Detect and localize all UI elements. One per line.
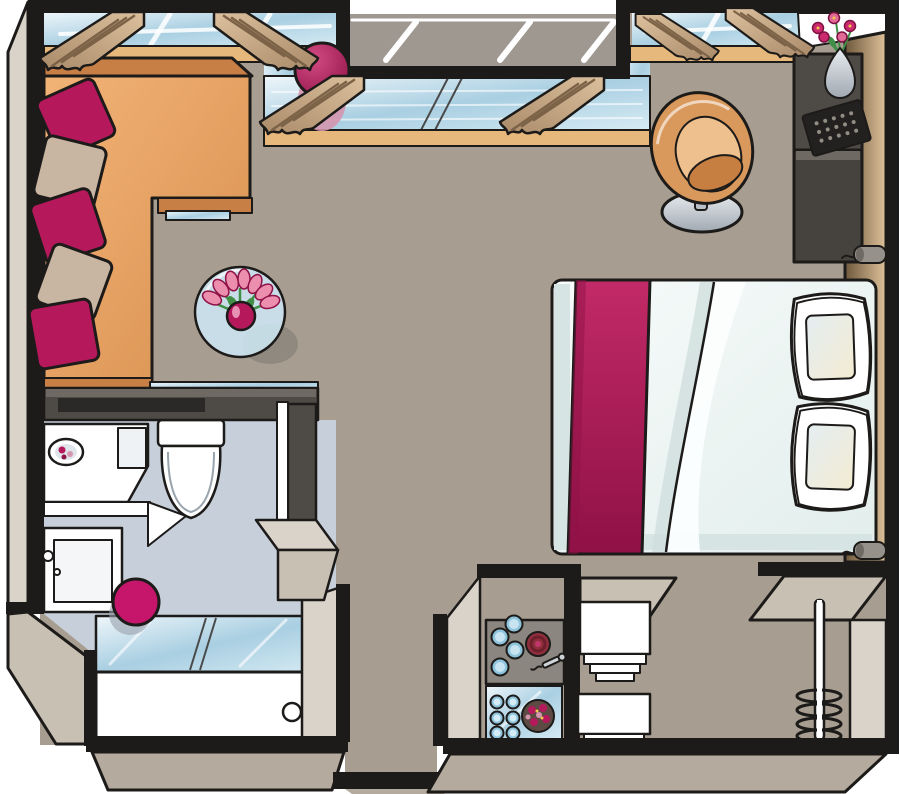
dark-partition-return [288, 404, 316, 522]
glass-ledge [166, 211, 230, 220]
floor-plan-illustration [0, 0, 900, 794]
cooktop-counter [486, 616, 567, 685]
nook-side-wall [850, 620, 886, 740]
drain [283, 703, 301, 721]
bed-pillow [790, 402, 872, 511]
left-wall-face [8, 2, 28, 614]
vanity [44, 424, 148, 502]
bath-bottom-face [92, 752, 344, 790]
decorated-plate [522, 700, 554, 732]
vase [227, 302, 255, 330]
pillow-magenta [28, 298, 100, 370]
hotplate [526, 632, 550, 656]
tv [58, 398, 205, 412]
bottom-face [428, 754, 886, 792]
bed-pillow [790, 292, 872, 401]
cabinet [43, 528, 122, 612]
corridor-floor [345, 520, 437, 782]
linen-stack [580, 602, 650, 681]
floor-plan-page [0, 0, 900, 794]
double-bed [552, 280, 876, 554]
bay-sill [264, 130, 650, 146]
bathroom-door [277, 402, 288, 520]
exterior-terrace [336, 0, 630, 66]
bathroom-side-wall [302, 588, 338, 740]
linen-stack [578, 694, 650, 741]
serving-tray [486, 686, 562, 740]
